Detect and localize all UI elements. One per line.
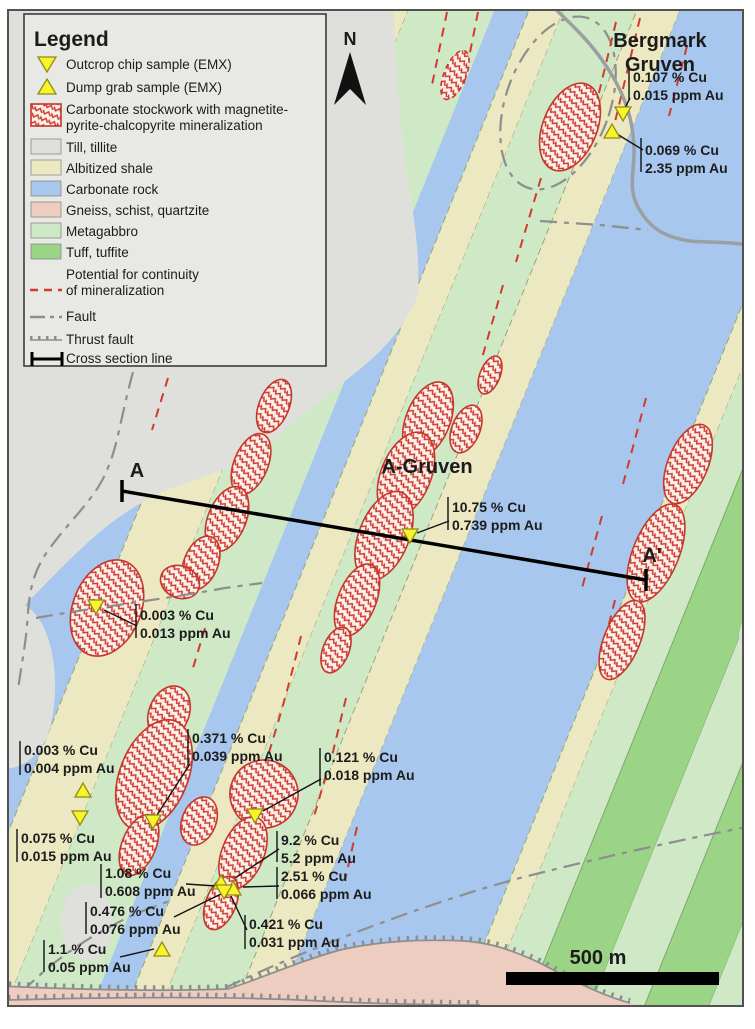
legend-item-label: Carbonate rock bbox=[66, 182, 159, 197]
sample-label: 0.476 % Cu bbox=[90, 903, 164, 919]
sample-label: 0.015 ppm Au bbox=[21, 848, 112, 864]
sample-label: 2.51 % Cu bbox=[281, 868, 347, 884]
sample-label: 0.371 % Cu bbox=[192, 730, 266, 746]
sample-label: 0.015 ppm Au bbox=[633, 87, 724, 103]
shale-swatch bbox=[31, 160, 61, 175]
sample-label: 0.004 ppm Au bbox=[24, 760, 115, 776]
sample-label: 1.1 % Cu bbox=[48, 941, 106, 957]
sample-label: 0.003 % Cu bbox=[140, 607, 214, 623]
tuff-swatch bbox=[31, 244, 61, 259]
sample-label: 0.069 % Cu bbox=[645, 142, 719, 158]
sample-label: 0.003 % Cu bbox=[24, 742, 98, 758]
sample-label: 5.2 ppm Au bbox=[281, 850, 356, 866]
legend-item-label: Fault bbox=[66, 309, 96, 324]
sample-label: 0.013 ppm Au bbox=[140, 625, 231, 641]
sample-label: 0.039 ppm Au bbox=[192, 748, 283, 764]
legend: Legend Outcrop chip sample (EMX) Dump gr… bbox=[24, 14, 326, 366]
scale-bar-rect bbox=[506, 972, 719, 985]
legend-item-label: Metagabbro bbox=[66, 224, 138, 239]
sample-label: 10.75 % Cu bbox=[452, 499, 526, 515]
north-label: N bbox=[344, 29, 357, 49]
sample-label: 0.421 % Cu bbox=[249, 916, 323, 932]
sample-label: 0.018 ppm Au bbox=[324, 767, 415, 783]
a-gruven-label: A-Gruven bbox=[381, 456, 472, 478]
sample-label: 0.031 ppm Au bbox=[249, 934, 340, 950]
legend-item-label: Gneiss, schist, quartzite bbox=[66, 203, 209, 218]
legend-item-label: Thrust fault bbox=[66, 332, 134, 347]
legend-item-label: Outcrop chip sample (EMX) bbox=[66, 57, 232, 72]
legend-item-label: Tuff, tuffite bbox=[66, 245, 129, 260]
sample-label: 0.075 % Cu bbox=[21, 830, 95, 846]
sample-label: 1.08 % Cu bbox=[105, 865, 171, 881]
bergmark-label-line2: Gruven bbox=[625, 54, 695, 76]
legend-item-label: pyrite-chalcopyrite mineralization bbox=[66, 118, 263, 133]
sample-label: 0.076 ppm Au bbox=[90, 921, 181, 937]
section-start-label: A bbox=[130, 460, 144, 482]
sample-label: 0.739 ppm Au bbox=[452, 517, 543, 533]
scale-label: 500 m bbox=[570, 947, 627, 969]
sample-label: 0.121 % Cu bbox=[324, 749, 398, 765]
sample-label: 0.608 ppm Au bbox=[105, 883, 196, 899]
sample-label: 0.05 ppm Au bbox=[48, 959, 131, 975]
sample-label: 0.066 ppm Au bbox=[281, 886, 372, 902]
sample-label: 9.2 % Cu bbox=[281, 832, 339, 848]
carbonate-swatch bbox=[31, 181, 61, 196]
legend-title: Legend bbox=[34, 28, 109, 51]
map-canvas: 0.107 % Cu 0.015 ppm Au 0.069 % Cu 2.35 … bbox=[0, 0, 755, 1024]
sample-label: 2.35 ppm Au bbox=[645, 160, 728, 176]
section-end-label: A' bbox=[642, 545, 661, 567]
legend-item-label: of mineralization bbox=[66, 283, 164, 298]
legend-item-label: Carbonate stockwork with magnetite- bbox=[66, 102, 288, 117]
till-swatch bbox=[31, 139, 61, 154]
legend-item-label: Till, tillite bbox=[66, 140, 117, 155]
legend-item-label: Potential for continuity bbox=[66, 267, 199, 282]
gneiss-swatch bbox=[31, 202, 61, 217]
metagabbro-swatch bbox=[31, 223, 61, 238]
legend-item-label: Albitized shale bbox=[66, 161, 153, 176]
legend-item-label: Dump grab sample (EMX) bbox=[66, 80, 222, 95]
bergmark-label-line1: Bergmark bbox=[613, 30, 707, 52]
geologic-map-figure: 0.107 % Cu 0.015 ppm Au 0.069 % Cu 2.35 … bbox=[0, 0, 755, 1024]
legend-item-label: Cross section line bbox=[66, 351, 173, 366]
stockwork-swatch bbox=[31, 104, 61, 126]
